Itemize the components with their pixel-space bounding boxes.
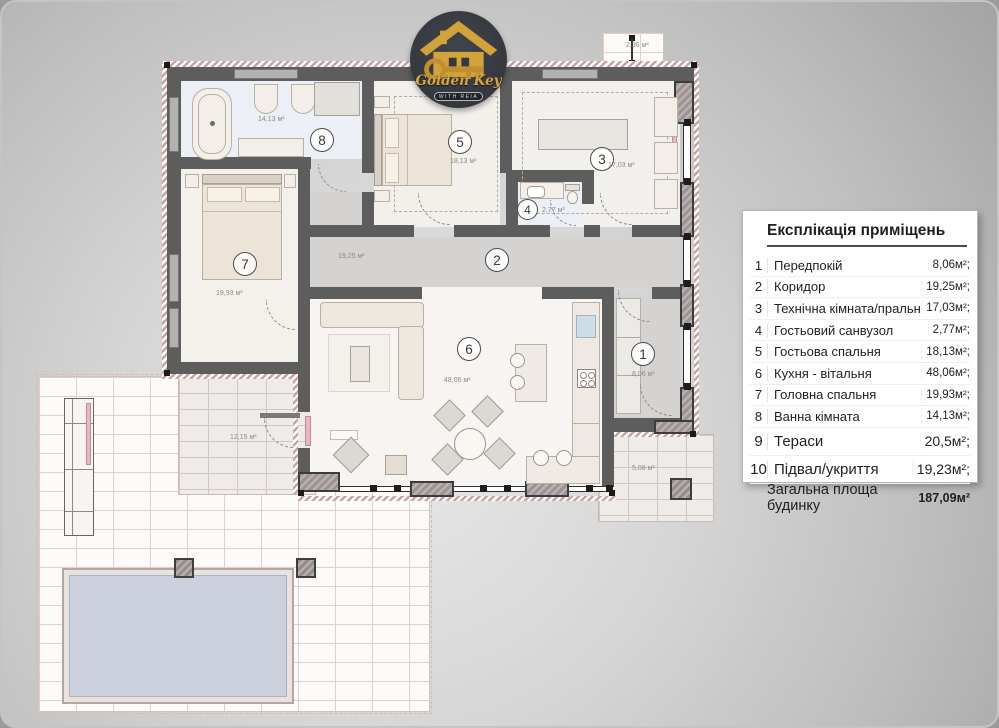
bath-vanity (238, 138, 304, 157)
pergola-rail (72, 399, 73, 535)
coffee-table (350, 346, 370, 382)
facade-pier (298, 472, 340, 492)
wall-bath-bottom (181, 157, 311, 169)
wardrobe-divider (617, 337, 640, 338)
wc-counter (520, 182, 564, 199)
legend-row-rnum: 8 (750, 409, 767, 424)
legend-title: Експлікація приміщень (743, 211, 977, 245)
legend-row-rarea: 19,93м²; (921, 389, 970, 401)
window-mullion (684, 119, 691, 126)
sink (254, 84, 278, 114)
room-number-6-text: 6 (465, 342, 473, 357)
legend-row-rname: Підвал/укриття (767, 461, 912, 478)
legend-row-rarea: 14,13м²; (921, 410, 970, 422)
cooktop (577, 369, 596, 388)
window-mullion (684, 383, 691, 390)
burner (580, 380, 587, 387)
island-sink (510, 353, 525, 368)
legend-row-rname: Технічна кімната/пральна (767, 301, 921, 316)
logo-tagline: WITH REIA (434, 92, 483, 101)
window-mullion (684, 233, 691, 240)
area-label-room1: 8,06 м² (632, 371, 655, 378)
blanket-line (203, 211, 281, 212)
nightstand (185, 174, 199, 188)
pergola-bench (64, 398, 94, 536)
legend-row-rnum: 6 (750, 366, 767, 381)
window-mullion (684, 178, 691, 185)
wall-node (609, 490, 615, 496)
room-number-8: 8 (310, 128, 334, 152)
wall-node (164, 370, 170, 376)
legend-row-rnum: 1 (750, 258, 767, 273)
insulation-room7-bottom (162, 374, 310, 379)
legend-row-rnum: 4 (750, 323, 767, 338)
golden-key-logo: Golden Key WITH REIA (410, 11, 507, 108)
sofa-side (398, 326, 424, 400)
burner (588, 372, 595, 379)
legend-row-rarea: 48,06м²; (921, 367, 970, 379)
legend-row: 6Кухня - вітальня48,06м²; (750, 363, 970, 385)
terrace-post (670, 478, 692, 500)
nightstand (374, 96, 390, 108)
window-mullion (394, 485, 401, 492)
legend-row: 7Головна спальня19,93м²; (750, 385, 970, 407)
area-label-room2: 19,25 м² (338, 253, 365, 260)
pergola-post (296, 558, 316, 578)
window-mullion (370, 485, 377, 492)
legend-row-rname: Кухня - вітальня (767, 366, 921, 381)
pergola-rung (65, 511, 93, 512)
legend-panel: Експлікація приміщень 1Передпокій8,06м²;… (742, 210, 978, 483)
area-label-room5: 18,13 м² (450, 158, 477, 165)
counter-divider (573, 423, 599, 424)
legend-row-rarea: 8,06м²; (928, 259, 970, 271)
legend-row-rnum: 3 (750, 301, 767, 316)
wall-corridor-top-c (584, 225, 600, 237)
bathtub-drain (210, 121, 215, 126)
room-number-4: 4 (517, 199, 538, 220)
legend-row-rname: Головна спальня (767, 387, 921, 402)
facade-pier (680, 284, 694, 327)
area-label-room8: 14,13 м² (258, 116, 285, 123)
area-label-room3: 17,03 м² (608, 162, 635, 169)
legend-row: 10Підвал/укриття19,23м²; (750, 456, 970, 484)
window-wall-east (683, 237, 691, 284)
window-room3-top (542, 69, 598, 79)
legend-row-rname: Гостьова спальня (767, 344, 921, 359)
burner (580, 372, 587, 379)
window-bedroom7 (169, 308, 179, 348)
wall-6-1 (602, 287, 614, 489)
bar-stool (533, 450, 549, 466)
legend-row-rnum: 7 (750, 387, 767, 402)
legend-total-row: Загальна площа будинку 187,09м² (743, 484, 977, 513)
terrace-door-leaf (305, 416, 311, 446)
window-mullion (504, 485, 511, 492)
blanket-line (407, 115, 408, 185)
room-number-1-text: 1 (639, 347, 647, 362)
room-number-5: 5 (448, 130, 472, 154)
room-number-1: 1 (631, 342, 655, 366)
room-number-2-text: 2 (493, 253, 501, 268)
pillow (385, 153, 399, 183)
wall-node (690, 431, 696, 437)
pergola-post (174, 558, 194, 578)
kitchen-sink (576, 315, 596, 338)
legend-row: 4Гостьовий санвузол2,77м²; (750, 320, 970, 342)
pillow (385, 118, 399, 148)
nightstand (284, 174, 296, 188)
wall-corridor-top-d (632, 225, 680, 237)
facade-pier (410, 481, 454, 497)
legend-row-rarea: 19,23м²; (912, 461, 970, 477)
legend-row: 1Передпокій8,06м²; (750, 255, 970, 277)
legend-row: 9Тераси20,5м²; (750, 428, 970, 456)
legend-row-rname: Гостьовий санвузол (767, 323, 928, 338)
area-label-room6: 48,06 м² (444, 377, 471, 384)
room-number-6: 6 (457, 337, 481, 361)
area-label-entry-terrace: 5,08 м² (632, 465, 655, 472)
bath-cabinet (314, 82, 360, 116)
wall-room7-bottom (167, 362, 310, 374)
wall-corridor-bottom-c (652, 287, 680, 299)
bar-stool (556, 450, 572, 466)
legend-row-rname: Тераси (767, 433, 920, 450)
wall-5-3 (500, 81, 512, 173)
wall-room7-right (298, 157, 310, 374)
window-wall-east (683, 122, 691, 182)
pillow (207, 187, 242, 202)
window-bath-top (234, 69, 298, 79)
window-mullion (586, 485, 593, 492)
house-key-icon (410, 19, 507, 79)
page-background: 1 2 3 4 5 6 7 8 8,06 м² 19,25 м² 17,03 м… (0, 0, 999, 728)
area-label-room4: 2,77 м² (542, 207, 565, 214)
swimming-pool (64, 570, 292, 702)
window-mullion (480, 485, 487, 492)
area-label-porch: 2,36 м² (626, 42, 649, 49)
facade-pier (654, 420, 694, 434)
wall-8-5 (362, 81, 374, 173)
area-label-room7: 19,93 м² (216, 290, 243, 297)
nightstand (374, 190, 390, 202)
window-bath (169, 97, 179, 152)
logo-brand-text: Golden Key (410, 73, 507, 89)
sofa-top (320, 302, 424, 328)
door-arc-bath (318, 164, 346, 192)
wall-corridor-bottom-a (310, 287, 422, 299)
legend-total-value: 187,09м² (918, 491, 970, 505)
legend-row-rnum: 2 (750, 279, 767, 294)
room-number-2: 2 (485, 248, 509, 272)
legend-row-rarea: 18,13м²; (921, 346, 970, 358)
insulation-right (694, 64, 699, 436)
wall-kitchen-left-a (298, 374, 310, 412)
window-mullion (684, 323, 691, 330)
legend-row-rname: Передпокій (767, 258, 928, 273)
legend-title-rule (767, 245, 967, 247)
room-number-7: 7 (233, 252, 257, 276)
wall-node (164, 62, 170, 68)
wall-node (298, 490, 304, 496)
legend-row: 2Коридор19,25м²; (750, 277, 970, 299)
room-number-8-text: 8 (318, 133, 326, 148)
wall-node (691, 62, 697, 68)
burner (588, 380, 595, 387)
side-table (385, 455, 407, 475)
room-number-7-text: 7 (241, 257, 249, 272)
island-sink (510, 375, 525, 390)
pillow (245, 187, 280, 202)
legend-row: 3Технічна кімната/пральна17,03м²; (750, 298, 970, 320)
room-number-3-text: 3 (598, 152, 606, 167)
legend-row-rnum: 10 (750, 461, 767, 478)
wall-corridor-top-b (454, 225, 550, 237)
legend-rows: 1Передпокій8,06м²;2Коридор19,25м²;3Техні… (743, 253, 977, 484)
appliance (654, 179, 678, 209)
room-number-5-text: 5 (456, 135, 464, 150)
wc-sink (527, 186, 545, 198)
window-mullion (684, 280, 691, 287)
entry-terrace (598, 434, 714, 522)
window-bedroom7 (169, 254, 179, 302)
wall-corridor-top-a (310, 225, 414, 237)
legend-row-rname: Коридор (767, 279, 921, 294)
guest-bed (382, 114, 452, 186)
legend-row-rarea: 17,03м²; (921, 302, 970, 314)
pergola-accent (86, 403, 91, 465)
legend-row-rnum: 5 (750, 344, 767, 359)
bed-headboard (202, 174, 282, 184)
appliance (654, 142, 678, 174)
bathtub (192, 88, 232, 160)
facade-pier (680, 182, 694, 237)
sink (291, 84, 315, 114)
pergola-rung (65, 469, 93, 470)
toilet-tank (565, 184, 580, 191)
appliance (654, 97, 678, 137)
legend-row-rarea: 2,77м²; (928, 324, 970, 336)
legend-row: 8Ванна кімната14,13м²; (750, 406, 970, 428)
work-table (538, 119, 628, 150)
area-label-covered-terrace: 12,15 м² (230, 434, 257, 441)
legend-row-rarea: 19,25м²; (921, 281, 970, 293)
room-number-4-text: 4 (524, 203, 531, 217)
legend-row-rarea: 20,5м²; (920, 433, 970, 449)
window-wall-east (683, 327, 691, 387)
legend-row-rname: Ванна кімната (767, 409, 921, 424)
legend-row: 5Гостьова спальня18,13м²; (750, 341, 970, 363)
legend-row-rnum: 9 (750, 433, 767, 450)
legend-total-label: Загальна площа будинку (767, 482, 918, 514)
bed-headboard (374, 114, 382, 186)
